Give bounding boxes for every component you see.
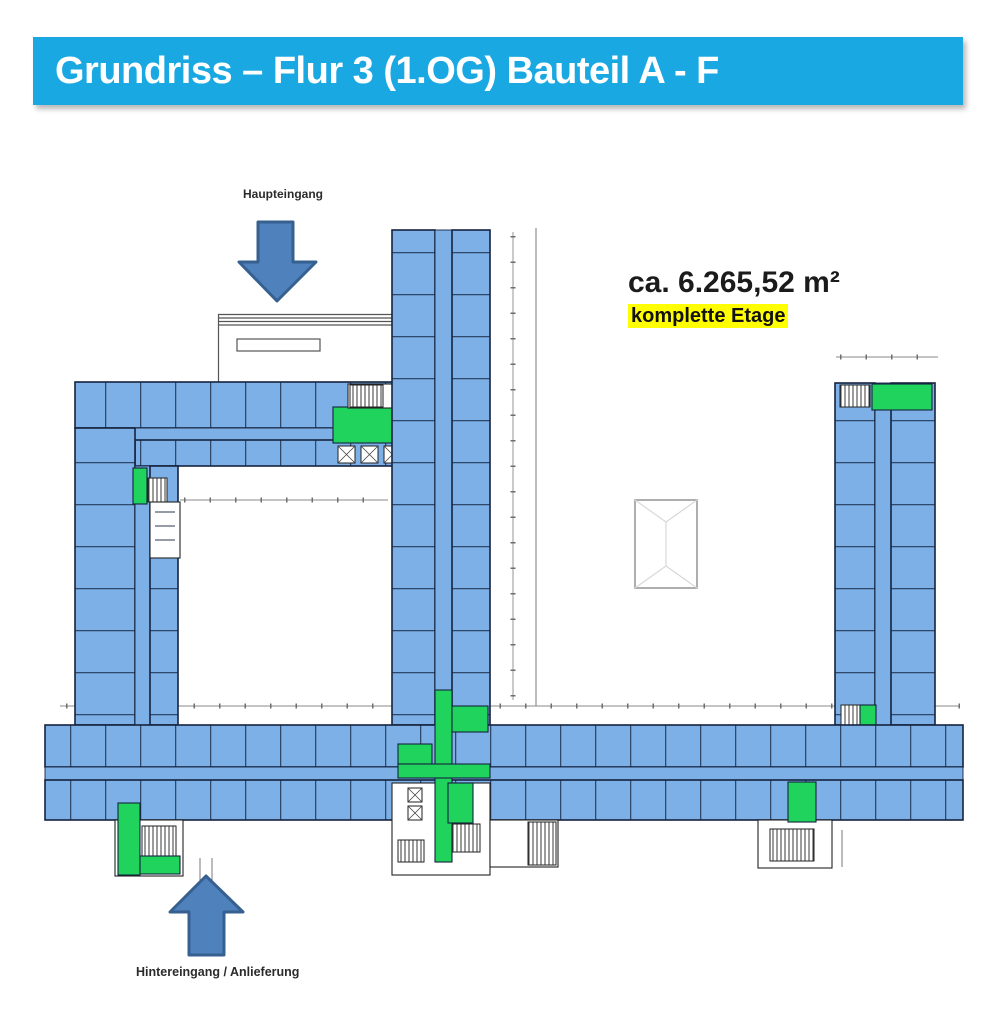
highlighted-room-left bbox=[133, 468, 147, 504]
slide: Grundriss – Flur 3 (1.OG) Bauteil A - F … bbox=[0, 0, 1001, 1024]
left-wing bbox=[75, 428, 180, 725]
entrance-canopy bbox=[218, 314, 392, 382]
ramp-structure bbox=[490, 820, 558, 867]
highlighted-rooms-right-top bbox=[872, 384, 932, 410]
stairwell-central-a bbox=[452, 824, 480, 852]
stairwell-bottom-left bbox=[142, 826, 176, 856]
rear-entrance-arrow-icon bbox=[170, 876, 243, 955]
stairwell-top bbox=[350, 385, 383, 407]
central-wing bbox=[392, 230, 490, 725]
right-wing bbox=[835, 383, 935, 732]
stairwell-bottom-right bbox=[770, 829, 814, 861]
courtyard-skylight bbox=[635, 500, 697, 588]
bottom-wing bbox=[45, 725, 963, 820]
floor-plan bbox=[0, 0, 1001, 1024]
stairwell-left bbox=[148, 478, 167, 502]
stairwell-right-top bbox=[840, 385, 870, 407]
stairwell-central-b bbox=[398, 840, 424, 862]
main-entrance-arrow-icon bbox=[239, 222, 316, 301]
